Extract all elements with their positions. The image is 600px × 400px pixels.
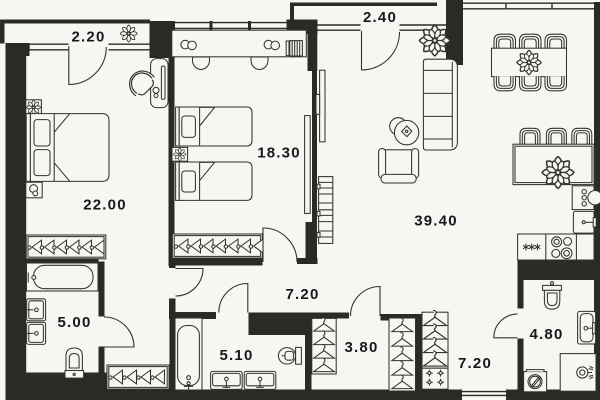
svg-text:3.80: 3.80 xyxy=(345,339,379,356)
svg-text:7.20: 7.20 xyxy=(458,355,492,372)
svg-text:5.00: 5.00 xyxy=(58,314,92,331)
svg-text:2.20: 2.20 xyxy=(72,29,106,46)
svg-text:7.20: 7.20 xyxy=(286,286,320,303)
svg-text:5.10: 5.10 xyxy=(220,347,254,364)
svg-text:18.30: 18.30 xyxy=(257,145,301,162)
svg-text:22.00: 22.00 xyxy=(83,197,127,214)
svg-text:4.80: 4.80 xyxy=(530,326,564,343)
svg-text:39.40: 39.40 xyxy=(414,213,458,230)
svg-text:2.40: 2.40 xyxy=(363,9,397,26)
